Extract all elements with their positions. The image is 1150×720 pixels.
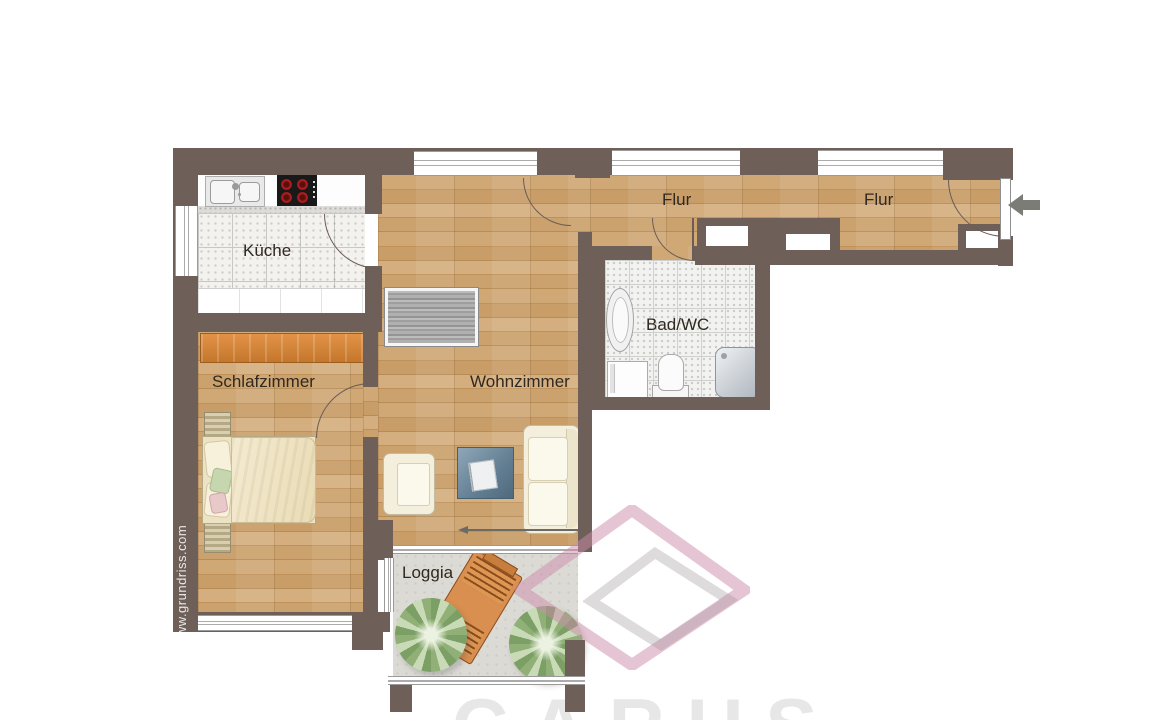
wall-bad-left (592, 246, 605, 410)
burner (297, 192, 308, 203)
toilet-bowl (658, 354, 684, 391)
wall-bad-right (755, 246, 770, 410)
shower-drain-icon (721, 353, 727, 359)
wall-stub-bedroom-loggia (352, 612, 383, 650)
nightstand (204, 412, 231, 438)
faucet-icon (232, 183, 239, 190)
wall-flur-stub (575, 163, 610, 178)
washer-panel (610, 364, 615, 393)
book (468, 459, 498, 491)
bed-pillow-pink (208, 492, 228, 515)
window-kitchen-left (175, 206, 198, 276)
room-label-flur-2: Flur (864, 190, 893, 210)
shaft-niche-1 (706, 226, 748, 246)
window-bedroom-bottom (198, 615, 352, 631)
entrance-arrow-icon (1008, 194, 1042, 216)
entrance-arrow-head (1008, 194, 1023, 216)
kitchen-sink (205, 176, 265, 207)
loggia-railing (388, 676, 585, 685)
watermark-grundriss-url: www.grundriss.com (174, 494, 191, 646)
window-top-1 (414, 151, 537, 176)
wall-kitchen-bedroom (192, 313, 382, 332)
nightstand (204, 522, 231, 553)
stove-controls (313, 181, 315, 199)
room-label-flur-1: Flur (662, 190, 691, 210)
toilet (652, 354, 688, 397)
dining-table (385, 288, 478, 346)
loggia-side-glass (384, 558, 394, 612)
wall-bedroom-right-upper (363, 332, 378, 387)
sink-basin-right (239, 182, 260, 202)
coffee-table (457, 447, 514, 499)
stove (277, 175, 317, 206)
entrance-arrow-shaft (1022, 200, 1040, 210)
room-label-wohnzimmer: Wohnzimmer (470, 372, 570, 392)
burner (297, 179, 308, 190)
watermark-brand-text: CARUS (452, 681, 839, 720)
room-label-loggia: Loggia (402, 563, 453, 583)
shaft-niche-2 (786, 234, 830, 250)
burner (281, 179, 292, 190)
burner (281, 192, 292, 203)
wardrobe (200, 333, 372, 363)
armchair-cushion (397, 463, 430, 506)
bed-duvet (231, 437, 316, 523)
double-bed (202, 436, 316, 524)
bathroom-sink (606, 288, 634, 352)
plant (395, 598, 467, 672)
wall-kitchen-right-upper (365, 148, 382, 214)
wall-wohnzimmer-right (578, 232, 592, 552)
kitchen-lower-cabinets (198, 288, 365, 314)
washing-machine (607, 361, 648, 398)
wall-bad-bottom (592, 397, 770, 410)
room-label-bad: Bad/WC (646, 315, 709, 335)
sink-basin-left (210, 180, 235, 204)
window-top-3 (818, 150, 943, 176)
floorplan-canvas: Küche Schlafzimmer Wohnzimmer Flur Flur … (0, 0, 1150, 720)
carus-logo-icon (515, 505, 750, 670)
wall-entrance-below-door (998, 236, 1013, 266)
armchair (383, 453, 435, 515)
room-label-kueche: Küche (243, 241, 291, 261)
sofa-cushion (528, 437, 568, 481)
wall-bad-top-left (592, 246, 652, 260)
indicator-arrowhead-icon (458, 526, 468, 534)
bathroom-door-leaf (692, 218, 694, 260)
wall-bedroom-right-lower (363, 437, 378, 612)
wall-top-right-corner (943, 148, 1013, 180)
room-label-schlafzimmer: Schlafzimmer (212, 372, 315, 392)
bathroom-sink-basin (612, 297, 629, 343)
kitchen-counter-edge (198, 206, 365, 213)
wall-wohnzimmer-loggia-corner (378, 520, 393, 560)
window-top-2 (612, 150, 740, 176)
